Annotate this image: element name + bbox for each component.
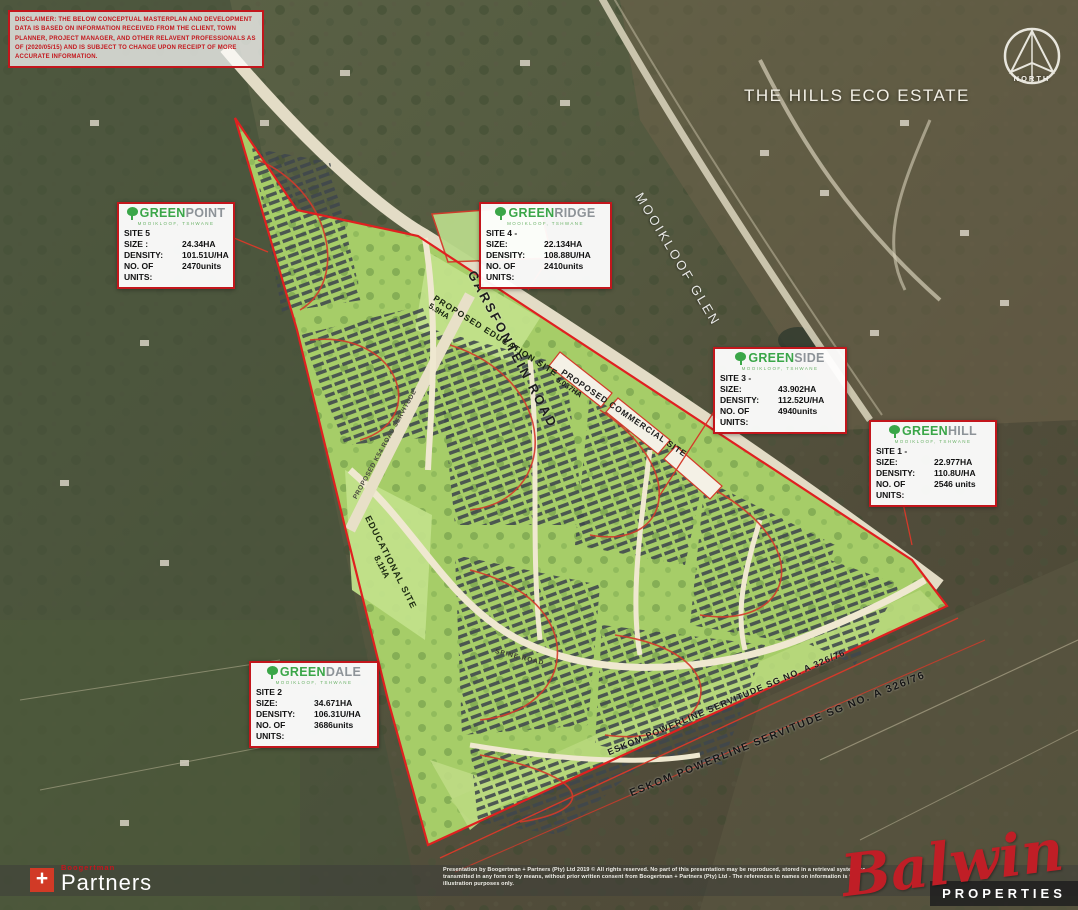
masterplan-page: DISCLAIMER: THE BELOW CONCEPTUAL MASTERP… (0, 0, 1078, 910)
site-stat-row: DENSITY:101.51U/HA (124, 250, 228, 261)
stat-label: SIZE: (876, 457, 934, 468)
site-stat-row: DENSITY:108.88U/HA (486, 250, 605, 261)
tree-icon (889, 425, 900, 438)
stat-label: DENSITY: (876, 468, 934, 479)
boogertman-partners-logo: + Boogertman Partners (30, 864, 152, 895)
brand-prefix: GREEN (748, 351, 794, 365)
hills-eco-estate-label: THE HILLS ECO ESTATE (744, 86, 970, 106)
disclaimer-box: DISCLAIMER: THE BELOW CONCEPTUAL MASTERP… (8, 10, 264, 68)
stat-value: 34.671HA (314, 698, 372, 709)
greenside-brand: GREENSIDE (720, 352, 840, 365)
brand-suffix: RIDGE (554, 206, 595, 220)
brand-subtitle: MOOIKLOOF, TSHWANE (124, 221, 228, 226)
stat-label: SIZE: (486, 239, 544, 250)
footer-copyright: Presentation by Boogertman + Partners (P… (443, 867, 878, 888)
stat-label: DENSITY: (256, 709, 314, 720)
site-box-greenridge: GREENRIDGE MOOIKLOOF, TSHWANE SITE 4 - S… (479, 202, 612, 289)
site-number: SITE 1 - (876, 446, 990, 456)
stat-label: SIZE: (256, 698, 314, 709)
tree-icon (495, 207, 506, 220)
stat-value: 2470units (182, 261, 228, 283)
brand-prefix: GREEN (508, 206, 554, 220)
plus-icon: + (30, 868, 54, 892)
site-box-greenhill: GREENHILL MOOIKLOOF, TSHWANE SITE 1 - SI… (869, 420, 997, 507)
site-stat-row: NO. OF UNITS:3686units (256, 720, 372, 742)
tree-icon (127, 207, 138, 220)
site-box-greenpoint: GREENPOINT MOOIKLOOF, TSHWANE SITE 5 SIZ… (117, 202, 235, 289)
site-stat-row: SIZE:22.977HA (876, 457, 990, 468)
stat-value: 106.31U/HA (314, 709, 372, 720)
site-stat-row: NO. OF UNITS:2410units (486, 261, 605, 283)
brand-suffix: DALE (326, 665, 361, 679)
site-number: SITE 5 (124, 228, 228, 238)
site-stat-row: DENSITY:106.31U/HA (256, 709, 372, 720)
site-stat-row: NO. OF UNITS:2470units (124, 261, 228, 283)
site-stat-row: SIZE:43.902HA (720, 384, 840, 395)
stat-label: DENSITY: (124, 250, 182, 261)
site-stat-row: SIZE:22.134HA (486, 239, 605, 250)
balwin-properties-logo: PROPERTIES Balwin (878, 815, 1078, 910)
site-stat-row: SIZE :24.34HA (124, 239, 228, 250)
partners-text: Partners (61, 872, 152, 894)
stat-label: NO. OF UNITS: (486, 261, 544, 283)
stat-value: 2410units (544, 261, 605, 283)
stat-value: 4940units (778, 406, 840, 428)
site-number: SITE 2 (256, 687, 372, 697)
stat-label: NO. OF UNITS: (256, 720, 314, 742)
greenridge-brand: GREENRIDGE (486, 207, 605, 220)
stat-label: NO. OF UNITS: (124, 261, 182, 283)
greendale-brand: GREENDALE (256, 666, 372, 679)
stat-label: NO. OF UNITS: (876, 479, 934, 501)
stat-value: 108.88U/HA (544, 250, 605, 261)
brand-prefix: GREEN (902, 424, 948, 438)
stat-value: 101.51U/HA (182, 250, 229, 261)
stat-value: 2546 units (934, 479, 990, 501)
brand-subtitle: MOOIKLOOF, TSHWANE (720, 366, 840, 371)
site-box-greenside: GREENSIDE MOOIKLOOF, TSHWANE SITE 3 - SI… (713, 347, 847, 434)
greenhill-brand: GREENHILL (876, 425, 990, 438)
stat-value: 110.8U/HA (934, 468, 990, 479)
stat-label: DENSITY: (486, 250, 544, 261)
site-stat-row: NO. OF UNITS:4940units (720, 406, 840, 428)
stat-value: 22.134HA (544, 239, 605, 250)
tree-icon (735, 352, 746, 365)
compass-icon (996, 26, 1068, 88)
stat-value: 112.52U/HA (778, 395, 840, 406)
brand-subtitle: MOOIKLOOF, TSHWANE (256, 680, 372, 685)
stat-value: 22.977HA (934, 457, 990, 468)
site-number: SITE 4 - (486, 228, 605, 238)
brand-prefix: GREEN (140, 206, 186, 220)
stat-label: DENSITY: (720, 395, 778, 406)
stat-value: 24.34HA (182, 239, 228, 250)
brand-suffix: HILL (948, 424, 977, 438)
stat-value: 3686units (314, 720, 372, 742)
brand-prefix: GREEN (280, 665, 326, 679)
stat-value: 43.902HA (778, 384, 840, 395)
site-box-greendale: GREENDALE MOOIKLOOF, TSHWANE SITE 2 SIZE… (249, 661, 379, 748)
site-stat-row: DENSITY:110.8U/HA (876, 468, 990, 479)
site-stat-row: SIZE:34.671HA (256, 698, 372, 709)
stat-label: SIZE : (124, 239, 182, 250)
north-compass: NORTH (994, 26, 1070, 83)
site-stat-row: DENSITY:112.52U/HA (720, 395, 840, 406)
stat-label: SIZE: (720, 384, 778, 395)
site-number: SITE 3 - (720, 373, 840, 383)
brand-suffix: SIDE (794, 351, 824, 365)
site-stat-row: NO. OF UNITS:2546 units (876, 479, 990, 501)
stat-label: NO. OF UNITS: (720, 406, 778, 428)
tree-icon (267, 666, 278, 679)
brand-subtitle: MOOIKLOOF, TSHWANE (876, 439, 990, 444)
brand-suffix: POINT (186, 206, 226, 220)
greenpoint-brand: GREENPOINT (124, 207, 228, 220)
brand-subtitle: MOOIKLOOF, TSHWANE (486, 221, 605, 226)
